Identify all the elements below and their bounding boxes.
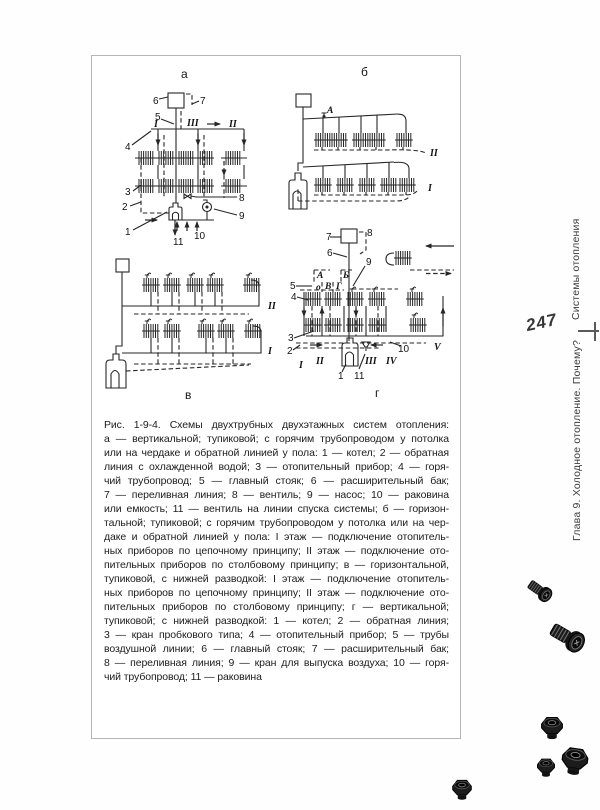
callout-4: 4 xyxy=(291,292,297,303)
caption-line: линия с охлажденной водой; 3 — отопитель… xyxy=(104,460,449,474)
caption-line: тупиковой, с нижней разводкой: I этаж — … xyxy=(104,572,449,586)
caption-line: 8 — переливная линия; 9 — кран для выпус… xyxy=(104,656,449,670)
riser-III: III xyxy=(364,356,378,367)
riser-V: V xyxy=(434,342,442,353)
riser-III: III xyxy=(186,118,200,129)
callout-11: 11 xyxy=(354,371,365,382)
callout-6: 6 xyxy=(327,248,333,259)
caption-line: 7 — переливная линия; 8 — вентиль; 9 — н… xyxy=(104,488,449,502)
node-label-A: А xyxy=(316,271,323,281)
node-label-o: о xyxy=(316,283,321,293)
air-tap-icon xyxy=(412,313,418,318)
panel-label-g: г xyxy=(375,386,380,400)
diagram-g-vertical-bottom: 7 8 6 9 А Б 5 о В Г 4 3 2 1 11 10 I II I… xyxy=(286,226,459,414)
radiator-symbol xyxy=(324,318,342,332)
radiator-symbol xyxy=(368,318,386,332)
pump-symbol xyxy=(203,200,212,212)
callout-10: 10 xyxy=(398,344,410,355)
page-content-frame: а xyxy=(91,55,461,739)
air-tap-icon xyxy=(200,319,206,324)
callout-10: 10 xyxy=(194,231,206,242)
expansion-tank xyxy=(168,93,184,108)
hex-nut-icon xyxy=(537,759,554,777)
page-number: 247 xyxy=(524,310,559,336)
book-page-scan: а xyxy=(0,0,600,810)
radiator-symbol xyxy=(142,278,160,292)
caption-line: а — вертикальной; тупиковой; с горячим т… xyxy=(104,432,449,446)
node-label-V: В xyxy=(324,282,331,292)
caption-line: чий трубопровод; 5 — главный стояк; 6 — … xyxy=(104,474,449,488)
bolt-icon xyxy=(526,578,555,605)
radiator-symbol xyxy=(197,324,215,338)
caption-line: ных приборов по цепочному принципу; II э… xyxy=(104,544,449,558)
caption-line: Рис. 1-9-4. Схемы двухтрубных двухэтажны… xyxy=(104,418,449,432)
caption-line: чий трубопровод; 11 — раковина xyxy=(104,670,449,684)
air-tap-icon xyxy=(166,273,172,278)
air-tap-icon xyxy=(410,287,416,292)
radiator-symbol xyxy=(330,133,348,147)
panel-label-b: б xyxy=(361,65,368,79)
floor-I: I xyxy=(427,183,433,194)
air-tap-icon xyxy=(209,273,215,278)
valve-symbol xyxy=(184,194,191,199)
riser-II: II xyxy=(228,119,238,130)
radiator-symbol xyxy=(314,133,332,147)
caption-line: даке и обратной линией у пола: I этаж — … xyxy=(104,530,449,544)
radiator-symbol xyxy=(304,318,322,332)
valve-label-A: А xyxy=(326,106,333,116)
expansion-tank xyxy=(116,259,129,272)
callout-7: 7 xyxy=(326,232,332,243)
radiator-symbol xyxy=(398,178,416,192)
hex-nut-icon xyxy=(542,717,563,739)
radiator-symbol xyxy=(314,178,332,192)
radiator-symbol xyxy=(244,324,262,338)
callout-8: 8 xyxy=(239,193,245,204)
radiator-symbol xyxy=(395,133,413,147)
caption-line: пительных приборов по столбовому принцип… xyxy=(104,558,449,572)
decorative-screws xyxy=(420,560,600,810)
panel-label-v: в xyxy=(185,388,191,402)
caption-line: тальной; тупиковой; с горячим трубопрово… xyxy=(104,516,449,530)
radiator-symbol xyxy=(217,324,235,338)
radiator-symbol xyxy=(163,324,181,338)
figure-caption: Рис. 1-9-4. Схемы двухтрубных двухэтажны… xyxy=(104,418,449,684)
caption-line: или емкость; 11 — вентиль на линии спуск… xyxy=(104,502,449,516)
node-label-B: Б xyxy=(342,271,349,281)
margin-rule-vertical xyxy=(594,322,596,341)
callout-9: 9 xyxy=(239,211,245,222)
callout-8: 8 xyxy=(367,228,373,239)
boiler-symbol xyxy=(169,203,182,220)
caption-line: или на чердаке и обратной линией у пола:… xyxy=(104,446,449,460)
air-tap-icon xyxy=(246,273,252,278)
caption-line: тупиковой; с нижней разводкой: 1 — котел… xyxy=(104,614,449,628)
callout-1: 1 xyxy=(338,371,344,382)
air-tap-icon xyxy=(247,319,253,324)
air-tap-icon xyxy=(220,319,226,324)
radiator-symbol xyxy=(142,324,160,338)
expansion-tank xyxy=(341,229,357,243)
radiator-symbol xyxy=(324,292,342,306)
caption-line: пительных приборов по столбовому принцип… xyxy=(104,600,449,614)
callout-11: 11 xyxy=(173,237,184,246)
margin-chapter-title: Глава 9. Холодное отопление. Почему? xyxy=(571,340,583,541)
callout-6: 6 xyxy=(153,96,159,107)
diagram-a-vertical-system: а xyxy=(111,63,301,246)
callout-7: 7 xyxy=(200,96,206,107)
caption-line: ных приборов по цепочному принципу; II э… xyxy=(104,586,449,600)
hex-nut-icon xyxy=(560,747,589,776)
radiator-symbol xyxy=(380,178,398,192)
air-tap-icon xyxy=(145,273,151,278)
diagram-v-horizontal-bottom: II I в xyxy=(101,246,291,414)
floor-I: I xyxy=(267,346,273,357)
radiator-symbol xyxy=(406,292,424,306)
bolt-icon xyxy=(547,620,588,656)
funnel-symbol xyxy=(362,342,370,351)
radiator-symbol xyxy=(163,278,181,292)
air-tap-icon xyxy=(145,319,151,324)
callout-3: 3 xyxy=(288,333,294,344)
radiator-symbol xyxy=(304,292,322,306)
radiator-symbol xyxy=(336,178,354,192)
radiator-symbol xyxy=(358,178,376,192)
callout-3: 3 xyxy=(125,187,131,198)
radiator-symbol xyxy=(368,292,386,306)
node-label-G: Г xyxy=(335,282,342,292)
expansion-tank xyxy=(296,94,311,107)
riser-IV: IV xyxy=(385,356,398,367)
radiator-symbol xyxy=(186,278,204,292)
callout-2: 2 xyxy=(287,346,293,357)
floor-II: II xyxy=(267,301,277,312)
radiator-symbol xyxy=(368,133,386,147)
riser-II: II xyxy=(315,356,325,367)
callout-4: 4 xyxy=(125,142,131,153)
callout-1: 1 xyxy=(125,227,131,238)
radiator-symbol xyxy=(206,278,224,292)
margin-section-title: Системы отопления xyxy=(570,219,582,320)
radiator-symbol xyxy=(394,251,412,265)
panel-label-a: а xyxy=(181,67,188,81)
callout-5: 5 xyxy=(290,281,296,292)
caption-line: 3 — кран пробкового типа; 4 — отопительн… xyxy=(104,628,449,642)
callout-2: 2 xyxy=(122,202,128,213)
floor-II: II xyxy=(429,148,439,159)
hex-nut-icon xyxy=(453,780,472,799)
radiator-symbol xyxy=(409,318,427,332)
callout-9: 9 xyxy=(366,257,372,268)
diagram-b-horizontal-system: б xyxy=(286,63,458,223)
air-tap-icon xyxy=(189,273,195,278)
caption-line: воздушной линии; 6 — главный стояк; 7 — … xyxy=(104,642,449,656)
radiator-symbol xyxy=(352,133,370,147)
air-tap-icon xyxy=(166,319,172,324)
riser-I: I xyxy=(298,360,304,371)
